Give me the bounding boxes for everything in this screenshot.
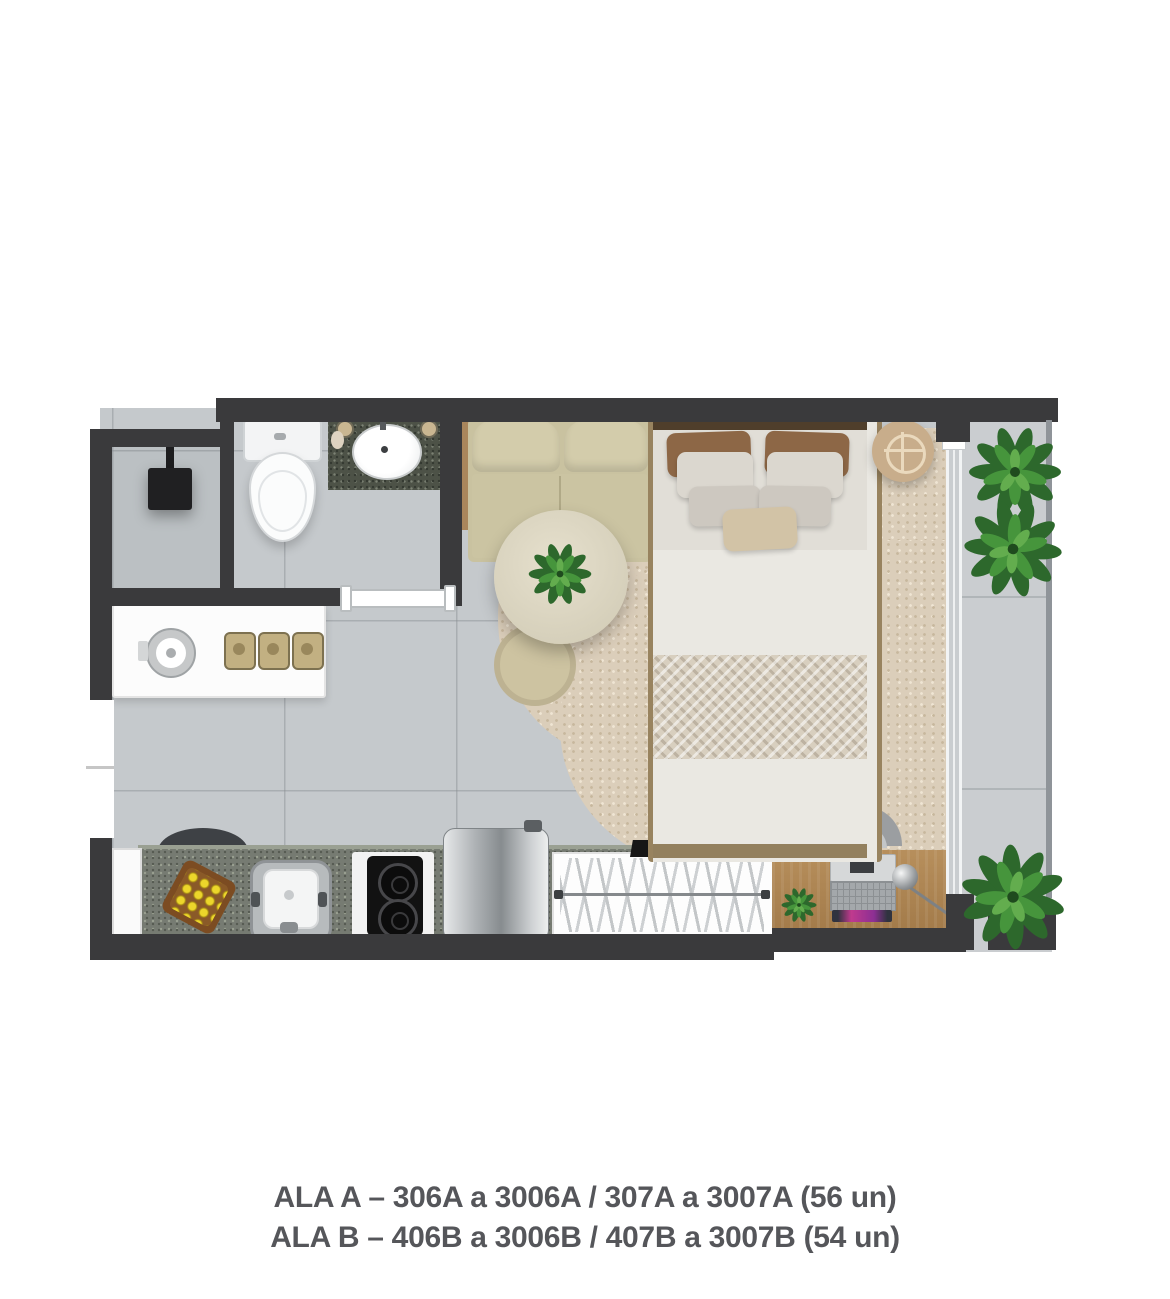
wall — [90, 429, 112, 952]
caption-line-1: ALA A – 306A a 3006A / 307A a 3007A (56 … — [0, 1178, 1170, 1218]
canister — [258, 632, 290, 670]
vanity-accessory — [420, 420, 438, 438]
lumbar-pillow — [722, 506, 798, 552]
table-plant — [526, 540, 594, 608]
sofa-cushion — [564, 420, 648, 472]
wall — [772, 928, 966, 952]
wall — [220, 420, 234, 600]
desk-plant — [780, 886, 818, 924]
sink-handle — [318, 892, 327, 907]
kitchen-faucet — [280, 922, 298, 933]
notebook — [832, 910, 892, 922]
canister — [292, 632, 324, 670]
entry-door-frame — [86, 766, 114, 769]
sink-handle — [251, 892, 260, 907]
bathroom-sink — [352, 424, 422, 480]
bathroom-sliding-door — [348, 589, 450, 608]
balcony-plant-bottom — [956, 838, 1070, 956]
floorplan-page: ALA A – 306A a 3006A / 307A a 3007A (56 … — [0, 0, 1170, 1299]
refrigerator — [443, 828, 549, 942]
sofa-cushion — [472, 420, 560, 472]
tray-pattern — [884, 449, 924, 452]
tray-pattern — [886, 434, 926, 474]
wall — [90, 934, 774, 960]
shower-head — [148, 468, 192, 510]
sink-drain — [284, 890, 294, 900]
desk-lamp — [892, 864, 918, 890]
cooktop-burner — [378, 863, 418, 903]
double-bed — [648, 410, 882, 862]
door-frame — [444, 585, 456, 612]
kettle-handle — [138, 641, 148, 661]
wall — [216, 398, 1058, 422]
door-frame — [340, 585, 352, 612]
toilet-flush-button — [274, 433, 286, 440]
soap-dish — [331, 431, 344, 449]
bed-foot-frame — [653, 844, 867, 858]
laptop-keyboard — [830, 881, 896, 911]
rack-rail — [558, 893, 766, 896]
wall — [440, 398, 462, 606]
canister — [224, 632, 256, 670]
kettle — [166, 648, 176, 658]
entry-door-opening — [86, 700, 114, 838]
knit-throw — [653, 655, 867, 759]
rack-knob — [761, 890, 770, 899]
balcony-plant-top — [960, 496, 1066, 602]
cooktop-burner — [378, 899, 418, 939]
refrigerator-handle — [524, 820, 542, 832]
balcony-tile-line — [958, 788, 1050, 790]
sink-drain — [381, 446, 388, 453]
tray-pattern — [901, 432, 904, 472]
rack-knob — [554, 890, 563, 899]
caption-line-2: ALA B – 406B a 3006B / 407B a 3007B (54 … — [0, 1218, 1170, 1258]
caption: ALA A – 306A a 3006A / 307A a 3007A (56 … — [0, 1178, 1170, 1258]
